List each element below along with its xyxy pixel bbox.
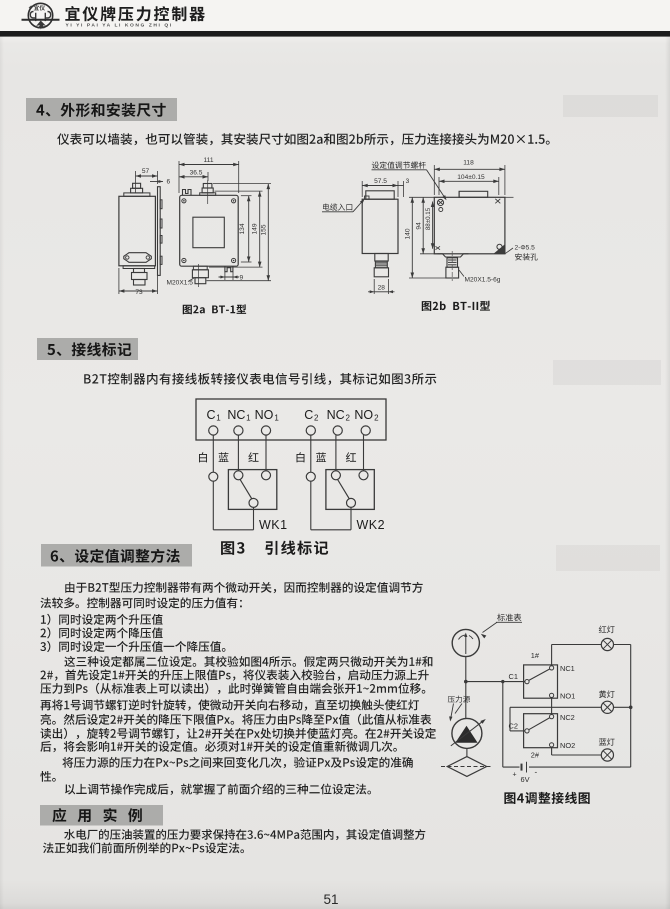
svg-text:NC: NC [327,408,345,422]
svg-text:149: 149 [251,223,258,234]
svg-text:1: 1 [246,414,251,423]
svg-text:NC: NC [227,408,245,422]
svg-text:118: 118 [463,160,474,167]
svg-text:C: C [304,408,313,422]
svg-text:2: 2 [374,414,379,423]
svg-text:NO1: NO1 [560,692,575,701]
svg-text:88±0.15: 88±0.15 [425,207,432,230]
svg-text:2-Φ5.5: 2-Φ5.5 [515,245,536,252]
svg-text:57: 57 [142,168,150,175]
svg-text:-: - [535,768,538,777]
svg-text:6V: 6V [521,775,530,784]
svg-text:73: 73 [135,289,143,296]
svg-text:9: 9 [240,275,244,282]
svg-text:3: 3 [406,178,410,185]
svg-text:94: 94 [415,222,422,230]
svg-text:51: 51 [323,892,338,907]
svg-text:NO2: NO2 [560,741,575,750]
svg-text:155: 155 [260,224,267,235]
svg-text:140: 140 [404,228,411,239]
svg-text:104±0.15: 104±0.15 [457,174,485,181]
svg-text:+: + [513,772,517,779]
svg-text:YI YI PAI YA LI KONG ZHI QI: YI YI PAI YA LI KONG ZHI QI [66,23,173,29]
svg-text:57.5: 57.5 [374,178,387,185]
svg-text:2: 2 [345,414,350,423]
svg-text:C: C [206,408,215,422]
svg-text:C2: C2 [509,722,518,731]
svg-text:28: 28 [378,285,386,292]
svg-text:2: 2 [314,414,319,423]
svg-text:111: 111 [203,157,213,164]
svg-text:WK1: WK1 [259,518,288,532]
svg-text:NC1: NC1 [560,664,575,673]
svg-text:NC2: NC2 [560,713,575,722]
svg-text:36.5: 36.5 [190,170,203,177]
svg-text:1: 1 [216,414,221,423]
svg-text:WK2: WK2 [357,518,386,532]
svg-text:6: 6 [167,179,171,186]
svg-text:2#: 2# [531,751,540,760]
svg-text:NO: NO [255,408,274,422]
svg-text:M20X1.5-6g: M20X1.5-6g [465,277,501,284]
svg-text:134: 134 [239,223,246,234]
svg-text:NO: NO [354,408,373,422]
svg-text:1#: 1# [531,651,540,660]
svg-text:1: 1 [274,414,279,423]
svg-text:C1: C1 [509,672,518,681]
